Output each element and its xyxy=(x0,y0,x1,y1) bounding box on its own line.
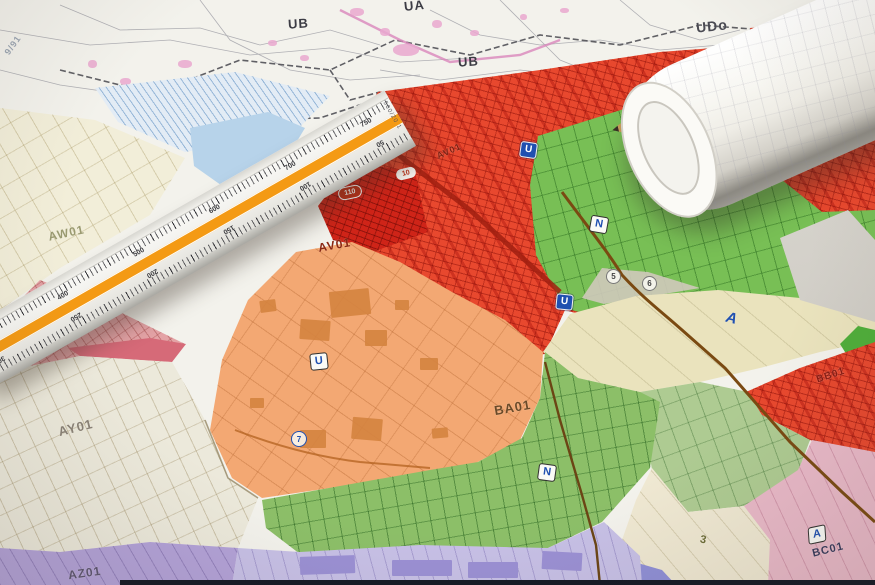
u-badge-red-lower: U xyxy=(555,293,574,311)
zone-label-ua: UA xyxy=(403,0,425,14)
n-badge-green-right: N xyxy=(589,215,610,235)
zone-label-ub-right: UB xyxy=(458,53,480,69)
u-badge-orange-zone: U xyxy=(309,352,329,371)
circle-badge-5: 5 xyxy=(606,269,621,284)
zone-label-udo: UDo xyxy=(695,16,728,35)
table-edge-strip xyxy=(120,580,875,585)
circle-badge-6: 6 xyxy=(642,276,657,291)
circle-badge-7: 7 xyxy=(291,431,307,447)
n-badge-green-bottom: N xyxy=(537,463,557,482)
photo-stage: UB UA UB UDo 9/91 AW01 AV01 AV01 AY01 AZ… xyxy=(0,0,875,585)
u-badge-red-zone: U xyxy=(519,141,538,159)
zone-label-ub-left: UB xyxy=(288,15,310,31)
